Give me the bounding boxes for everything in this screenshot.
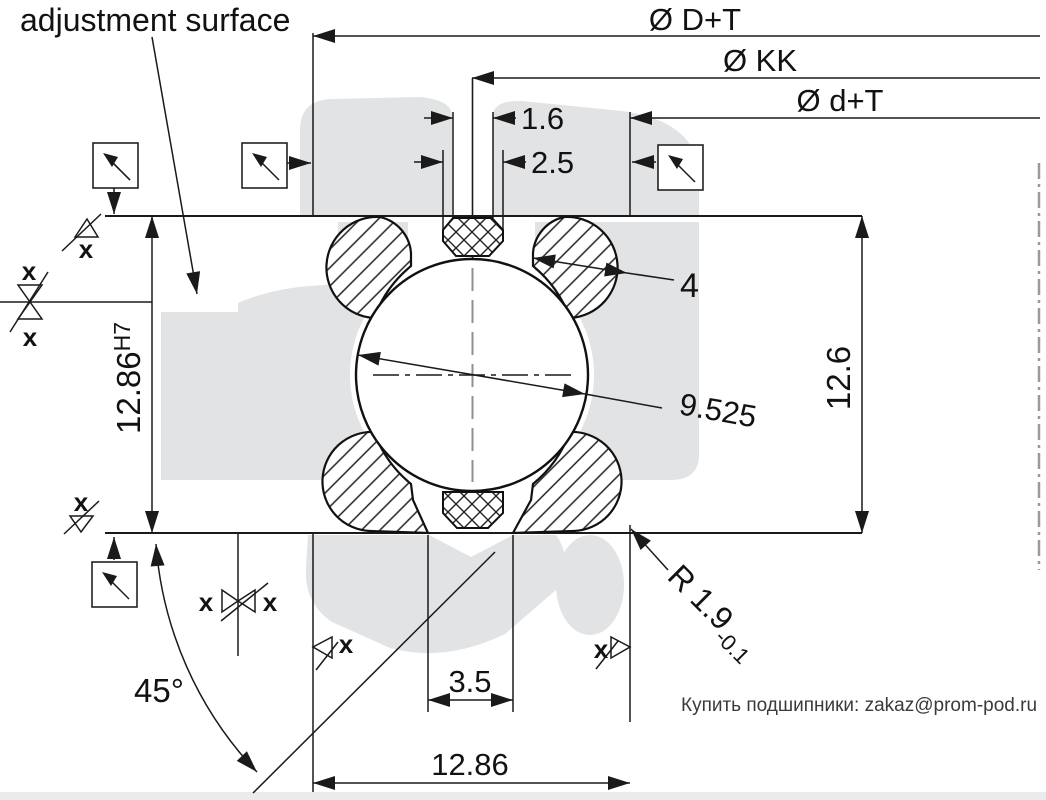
radius-label: R 1.9-0.1 — [656, 557, 767, 668]
contact-angle-label: 45° — [134, 672, 184, 709]
x-label: x — [23, 322, 38, 352]
height-label: 12.6 — [820, 346, 857, 410]
x-label: x — [22, 256, 37, 286]
mouth-width-label: 3.5 — [448, 664, 491, 699]
inner-dia-label: Ø d+T — [796, 83, 883, 118]
mark-left-hourglass: x x — [10, 256, 48, 352]
seal-top — [443, 218, 503, 256]
finish-box-top-left — [93, 143, 138, 214]
seal-mid-width-label: 2.5 — [531, 145, 574, 180]
mark-bottom-left: x — [64, 487, 99, 534]
bore-dim-label: 12.86H7 — [109, 322, 147, 434]
leader-adjustment-surface — [152, 37, 197, 294]
arch-offset-label: 4 — [680, 267, 699, 305]
bore-value: 12.86 — [110, 351, 147, 434]
leader-radius — [631, 529, 668, 570]
x-label: x — [263, 587, 278, 617]
ball-screw-groove-cross-section: x x x x x x x x — [0, 0, 1046, 800]
outer-dia-label: Ø D+T — [649, 2, 741, 37]
bore-fit: H7 — [109, 322, 135, 351]
seal-top-width-label: 1.6 — [521, 101, 564, 136]
x-label: x — [199, 587, 214, 617]
footer-contact-text: Купить подшипники: zakaz@prom-pod.ru — [681, 695, 1037, 716]
x-label: x — [339, 629, 354, 659]
dim-angle-arc — [156, 544, 257, 772]
mark-top-left: x — [62, 214, 101, 264]
finish-box-bottom-left — [92, 537, 137, 607]
seal-bottom — [443, 492, 503, 528]
x-label: x — [79, 234, 94, 264]
kk-dia-label: Ø KK — [723, 43, 797, 78]
engineering-drawing-canvas: x x x x x x x x — [0, 0, 1046, 800]
mark-center-bowtie: x x — [199, 533, 278, 656]
mark-mid-triangle: x — [313, 629, 354, 670]
mark-right-triangle: x — [594, 634, 630, 669]
total-width-label: 12.86 — [431, 747, 509, 782]
x-label: x — [594, 634, 609, 664]
adjustment-surface-label: adjustment surface — [20, 2, 290, 38]
